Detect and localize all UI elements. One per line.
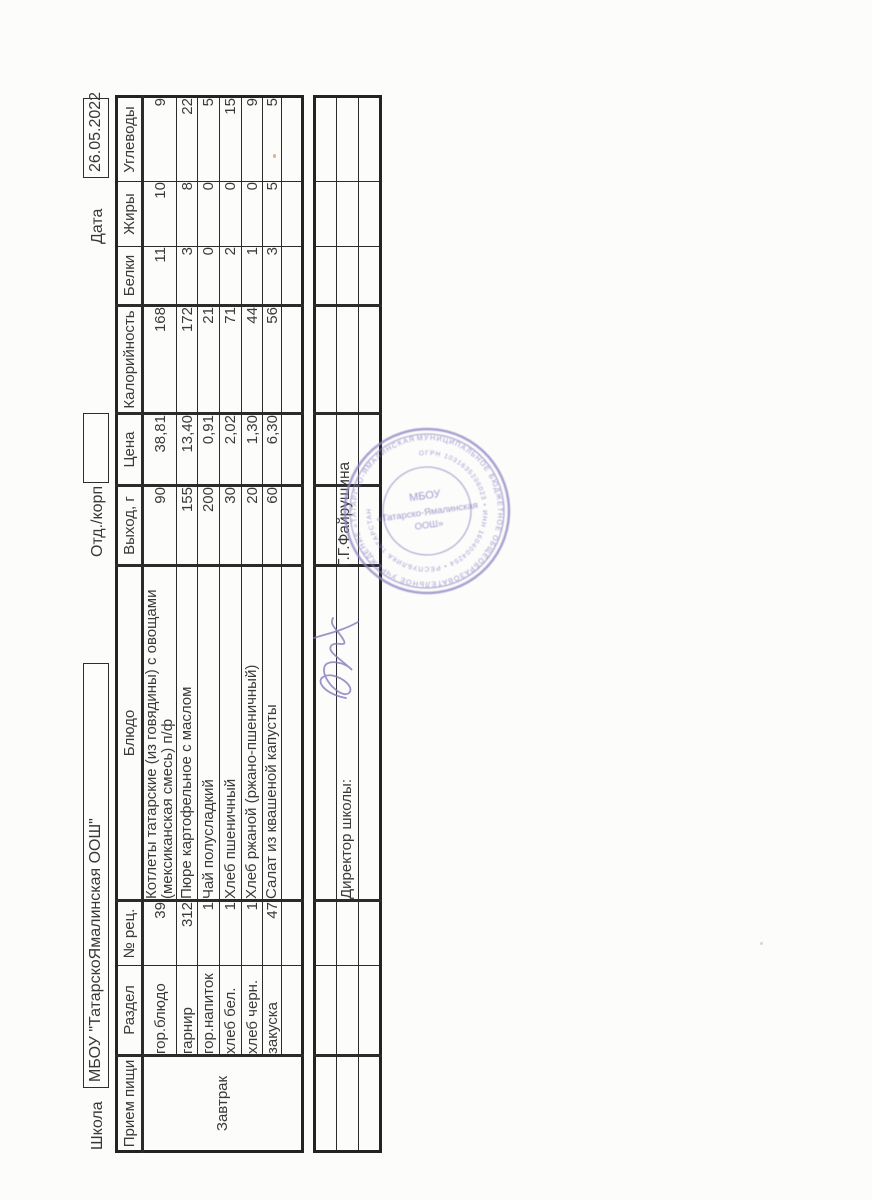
output-cell: 90: [143, 486, 177, 566]
landscape-sheet: Школа МБОУ "ТатарскоЯмалинская ООШ" Отд.…: [0, 0, 872, 1200]
output-cell: 20: [242, 486, 263, 566]
fat-cell: 5: [263, 182, 282, 247]
dept-field-label: Отд./корп: [86, 486, 110, 557]
table-row: гор.напиток 1 Чай полусладкий 200 0,91 2…: [198, 97, 220, 1152]
recipe-no-cell: 1: [220, 901, 242, 966]
col-header-calories: Калорийность: [117, 306, 143, 414]
fat-cell: 8: [177, 182, 198, 247]
dish-cell: Салат из квашеной капусты: [263, 566, 282, 901]
calories-cell: 172: [177, 306, 198, 414]
scanned-document: Школа МБОУ "ТатарскоЯмалинская ООШ" Отд.…: [0, 0, 872, 1200]
fat-cell: 0: [242, 182, 263, 247]
fat-cell: 0: [220, 182, 242, 247]
school-seal-stamp: МУНИЦИПАЛЬНОЕ БЮДЖЕТНОЕ ОБЩЕОБРАЗОВАТЕЛЬ…: [330, 414, 524, 608]
recipe-no-cell: 1: [242, 901, 263, 966]
section-cell: гор.блюдо: [143, 966, 177, 1056]
col-header-dish: Блюдо: [117, 566, 143, 901]
section-cell: гор.напиток: [198, 966, 220, 1056]
dish-cell: Хлеб пшеничный: [220, 566, 242, 901]
price-cell: 0,91: [198, 414, 220, 486]
carbs-cell: 9: [143, 97, 177, 182]
section-cell: гарнир: [177, 966, 198, 1056]
table-row: хлеб черн. 1 Хлеб ржаной (ржано-пшеничны…: [242, 97, 263, 1152]
school-name-text: МБОУ "ТатарскоЯмалинская ООШ": [87, 818, 104, 1082]
dish-cell: Котлеты татарские (из говядины) с овощам…: [143, 566, 177, 901]
recipe-no-cell: 39: [143, 901, 177, 966]
protein-cell: 11: [143, 247, 177, 306]
price-cell: 2,02: [220, 414, 242, 486]
carbs-cell: 22: [177, 97, 198, 182]
section-cell: хлеб бел.: [220, 966, 242, 1056]
carbs-cell: 9: [242, 97, 263, 182]
table-row: Завтрак гор.блюдо 39 Котлеты татарские (…: [143, 97, 177, 1152]
col-header-meal: Прием пищи: [117, 1056, 143, 1152]
section-cell: хлеб черн.: [242, 966, 263, 1056]
table-row: гарнир 312 Пюре картофельное с маслом 15…: [177, 97, 198, 1152]
col-header-recipe: № рец.: [117, 901, 143, 966]
seal-center-line3: ООШ»: [414, 518, 444, 533]
section-cell: закуска: [263, 966, 282, 1056]
output-cell: 155: [177, 486, 198, 566]
carbs-cell: 5: [263, 97, 282, 182]
output-cell: 200: [198, 486, 220, 566]
recipe-no-cell: 312: [177, 901, 198, 966]
protein-cell: 2: [220, 247, 242, 306]
school-field-label: Школа: [86, 1101, 110, 1150]
scan-speck: [273, 154, 276, 158]
empty-row: [282, 97, 303, 1152]
protein-cell: 0: [198, 247, 220, 306]
calories-cell: 168: [143, 306, 177, 414]
date-value-box: 26.05.2022: [83, 98, 109, 178]
protein-cell: 1: [242, 247, 263, 306]
protein-cell: 3: [263, 247, 282, 306]
date-field-label: Дата: [86, 209, 110, 244]
col-header-protein: Белки: [117, 247, 143, 306]
meal-name-cell: Завтрак: [143, 1056, 303, 1152]
recipe-no-cell: 1: [198, 901, 220, 966]
seal-icon: МУНИЦИПАЛЬНОЕ БЮДЖЕТНОЕ ОБЩЕОБРАЗОВАТЕЛЬ…: [330, 414, 524, 608]
col-header-section: Раздел: [117, 966, 143, 1056]
calories-cell: 21: [198, 306, 220, 414]
dept-value-box: [83, 413, 109, 483]
output-cell: 30: [220, 486, 242, 566]
protein-cell: 3: [177, 247, 198, 306]
col-header-fat: Жиры: [117, 182, 143, 247]
calories-cell: 56: [263, 306, 282, 414]
fat-cell: 0: [198, 182, 220, 247]
col-header-output: Выход, г: [117, 486, 143, 566]
carbs-cell: 5: [198, 97, 220, 182]
col-header-carbs: Углеводы: [117, 97, 143, 182]
price-cell: 1,30: [242, 414, 263, 486]
calories-cell: 44: [242, 306, 263, 414]
school-name-box: МБОУ "ТатарскоЯмалинская ООШ": [83, 663, 109, 1088]
director-signature-icon: [310, 596, 362, 708]
scan-speck: [760, 942, 763, 945]
calories-cell: 71: [220, 306, 242, 414]
output-cell: 60: [263, 486, 282, 566]
fat-cell: 10: [143, 182, 177, 247]
dish-cell: Хлеб ржаной (ржано-пшеничный): [242, 566, 263, 901]
dish-cell: Чай полусладкий: [198, 566, 220, 901]
table-row: закуска 47 Салат из квашеной капусты 60 …: [263, 97, 282, 1152]
menu-table: Прием пищи Раздел № рец. Блюдо Выход, г …: [115, 95, 304, 1153]
table-row: хлеб бел. 1 Хлеб пшеничный 30 2,02 71 2 …: [220, 97, 242, 1152]
recipe-no-cell: 47: [263, 901, 282, 966]
dish-cell: Пюре картофельное с маслом: [177, 566, 198, 901]
price-cell: 38,81: [143, 414, 177, 486]
carbs-cell: 15: [220, 97, 242, 182]
seal-center-line1: МБОУ: [408, 488, 442, 504]
col-header-price: Цена: [117, 414, 143, 486]
price-cell: 6,30: [263, 414, 282, 486]
price-cell: 13,40: [177, 414, 198, 486]
date-value-text: 26.05.2022: [87, 92, 104, 172]
